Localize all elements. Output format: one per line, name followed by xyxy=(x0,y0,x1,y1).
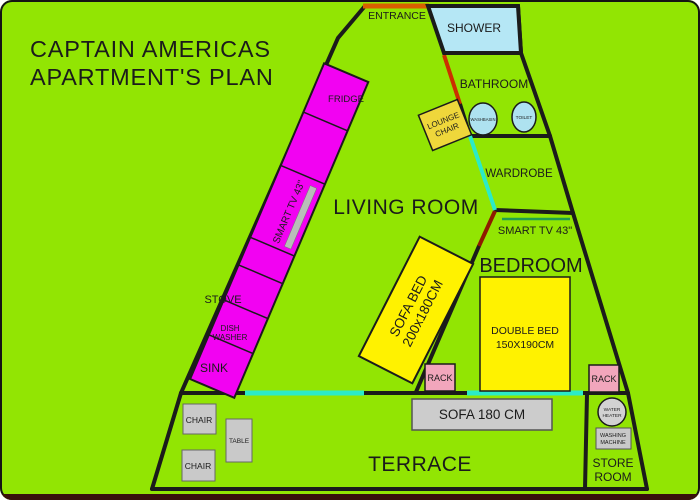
plan-title-line2: APARTMENT'S PLAN xyxy=(30,64,274,90)
store-room-label-line2: ROOM xyxy=(594,470,631,484)
terrace-label: TERRACE xyxy=(368,453,472,476)
fridge-label: FRIDGE xyxy=(328,94,364,105)
floor-plan-image: CAPTAIN AMERICAS APARTMENT'S PLAN SHOWER… xyxy=(0,0,700,500)
floor-plan-canvas: CAPTAIN AMERICAS APARTMENT'S PLAN SHOWER… xyxy=(0,0,700,500)
store-room-label-line1: STORE xyxy=(592,456,633,470)
bedroom-door-line xyxy=(479,211,495,246)
washbasin-label: WASHBASIN xyxy=(471,117,496,122)
rack-left-label: RACK xyxy=(427,373,452,383)
chair-bottom-label: CHAIR xyxy=(185,461,211,471)
toilet-label: TOILET xyxy=(516,115,533,121)
water-heater-label-line1: WATER xyxy=(604,407,621,413)
table-label: TABLE xyxy=(229,438,250,445)
living-room-label: LIVING ROOM xyxy=(333,196,479,219)
terrace-sofa-label: SOFA 180 CM xyxy=(439,407,525,422)
chair-top-label: CHAIR xyxy=(186,415,212,425)
lounge-chair: LOUNGE CHAIR xyxy=(418,100,471,151)
double-bed-label-line1: DOUBLE BED xyxy=(491,325,559,337)
bedroom-label: BEDROOM xyxy=(479,255,582,277)
sink-label: SINK xyxy=(200,361,228,375)
stove-label: STOVE xyxy=(204,294,241,306)
bottom-strip xyxy=(0,494,700,500)
bedroom-smart-tv-label: SMART TV 43" xyxy=(498,225,572,237)
shower-label: SHOWER xyxy=(447,21,501,35)
store-room-left-wall xyxy=(585,394,587,489)
washing-machine-label-line1: WASHING xyxy=(600,433,626,439)
terrace-left-wall xyxy=(152,393,181,489)
entrance-label: ENTRANCE xyxy=(368,10,426,22)
wardrobe-label: WARDROBE xyxy=(485,168,553,180)
bathroom-label: BATHROOM xyxy=(460,77,528,91)
washing-machine-label-line2: MACHINE xyxy=(600,440,626,446)
sofa-bed: SOFA BED 200x180CM xyxy=(359,237,473,384)
dish-washer-label-line2: WASHER xyxy=(213,333,248,342)
water-heater-label-line2: HEATER xyxy=(602,413,622,419)
bathroom-door-line xyxy=(444,55,460,104)
double-bed-label-line2: 150X190CM xyxy=(496,339,554,351)
rack-right-label: RACK xyxy=(591,374,616,384)
plan-title-line1: CAPTAIN AMERICAS xyxy=(30,36,271,62)
wardrobe-bottom-wall xyxy=(495,210,573,213)
dish-washer-label-line1: DISH xyxy=(220,324,239,333)
